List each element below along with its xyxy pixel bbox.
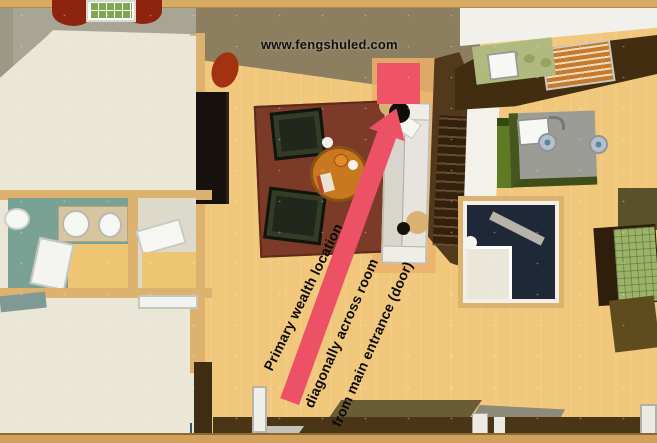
coffee-table-cup: [334, 154, 348, 167]
stair-light: [464, 236, 477, 249]
door-frame: [252, 386, 267, 433]
bathroom-sink: [98, 212, 122, 238]
counter-burner: [540, 57, 552, 67]
armchair-top: [270, 107, 327, 160]
tv-cabinet: [196, 92, 229, 204]
hallway-carpet: [0, 298, 190, 433]
floorplan-rendering: www.fengshuled.com: [0, 0, 657, 443]
bar-stool: [589, 135, 608, 154]
dining-table-top: [613, 227, 657, 304]
stairwell-landing: [467, 246, 512, 299]
stairwell: [458, 196, 564, 308]
bar-stool: [538, 133, 557, 152]
decor-item-dark: [397, 222, 410, 235]
wealth-location-marker: [377, 63, 420, 104]
door-frame: [640, 404, 657, 436]
bay-window: [86, 0, 136, 22]
window-panes: [90, 2, 132, 18]
bathroom-floor: [68, 244, 128, 292]
kitchen-sink: [486, 50, 519, 80]
counter-burner: [523, 53, 535, 63]
bathroom-divider-wall: [128, 198, 138, 292]
armchair-bottom: [263, 187, 327, 246]
watermark: www.fengshuled.com: [261, 37, 406, 55]
toilet: [4, 208, 30, 230]
interior-wall-lower: [194, 362, 212, 433]
dining-bench: [609, 295, 657, 352]
hallway-door: [138, 295, 198, 309]
closet-floor: [142, 252, 196, 292]
bathroom-sink: [62, 210, 90, 238]
